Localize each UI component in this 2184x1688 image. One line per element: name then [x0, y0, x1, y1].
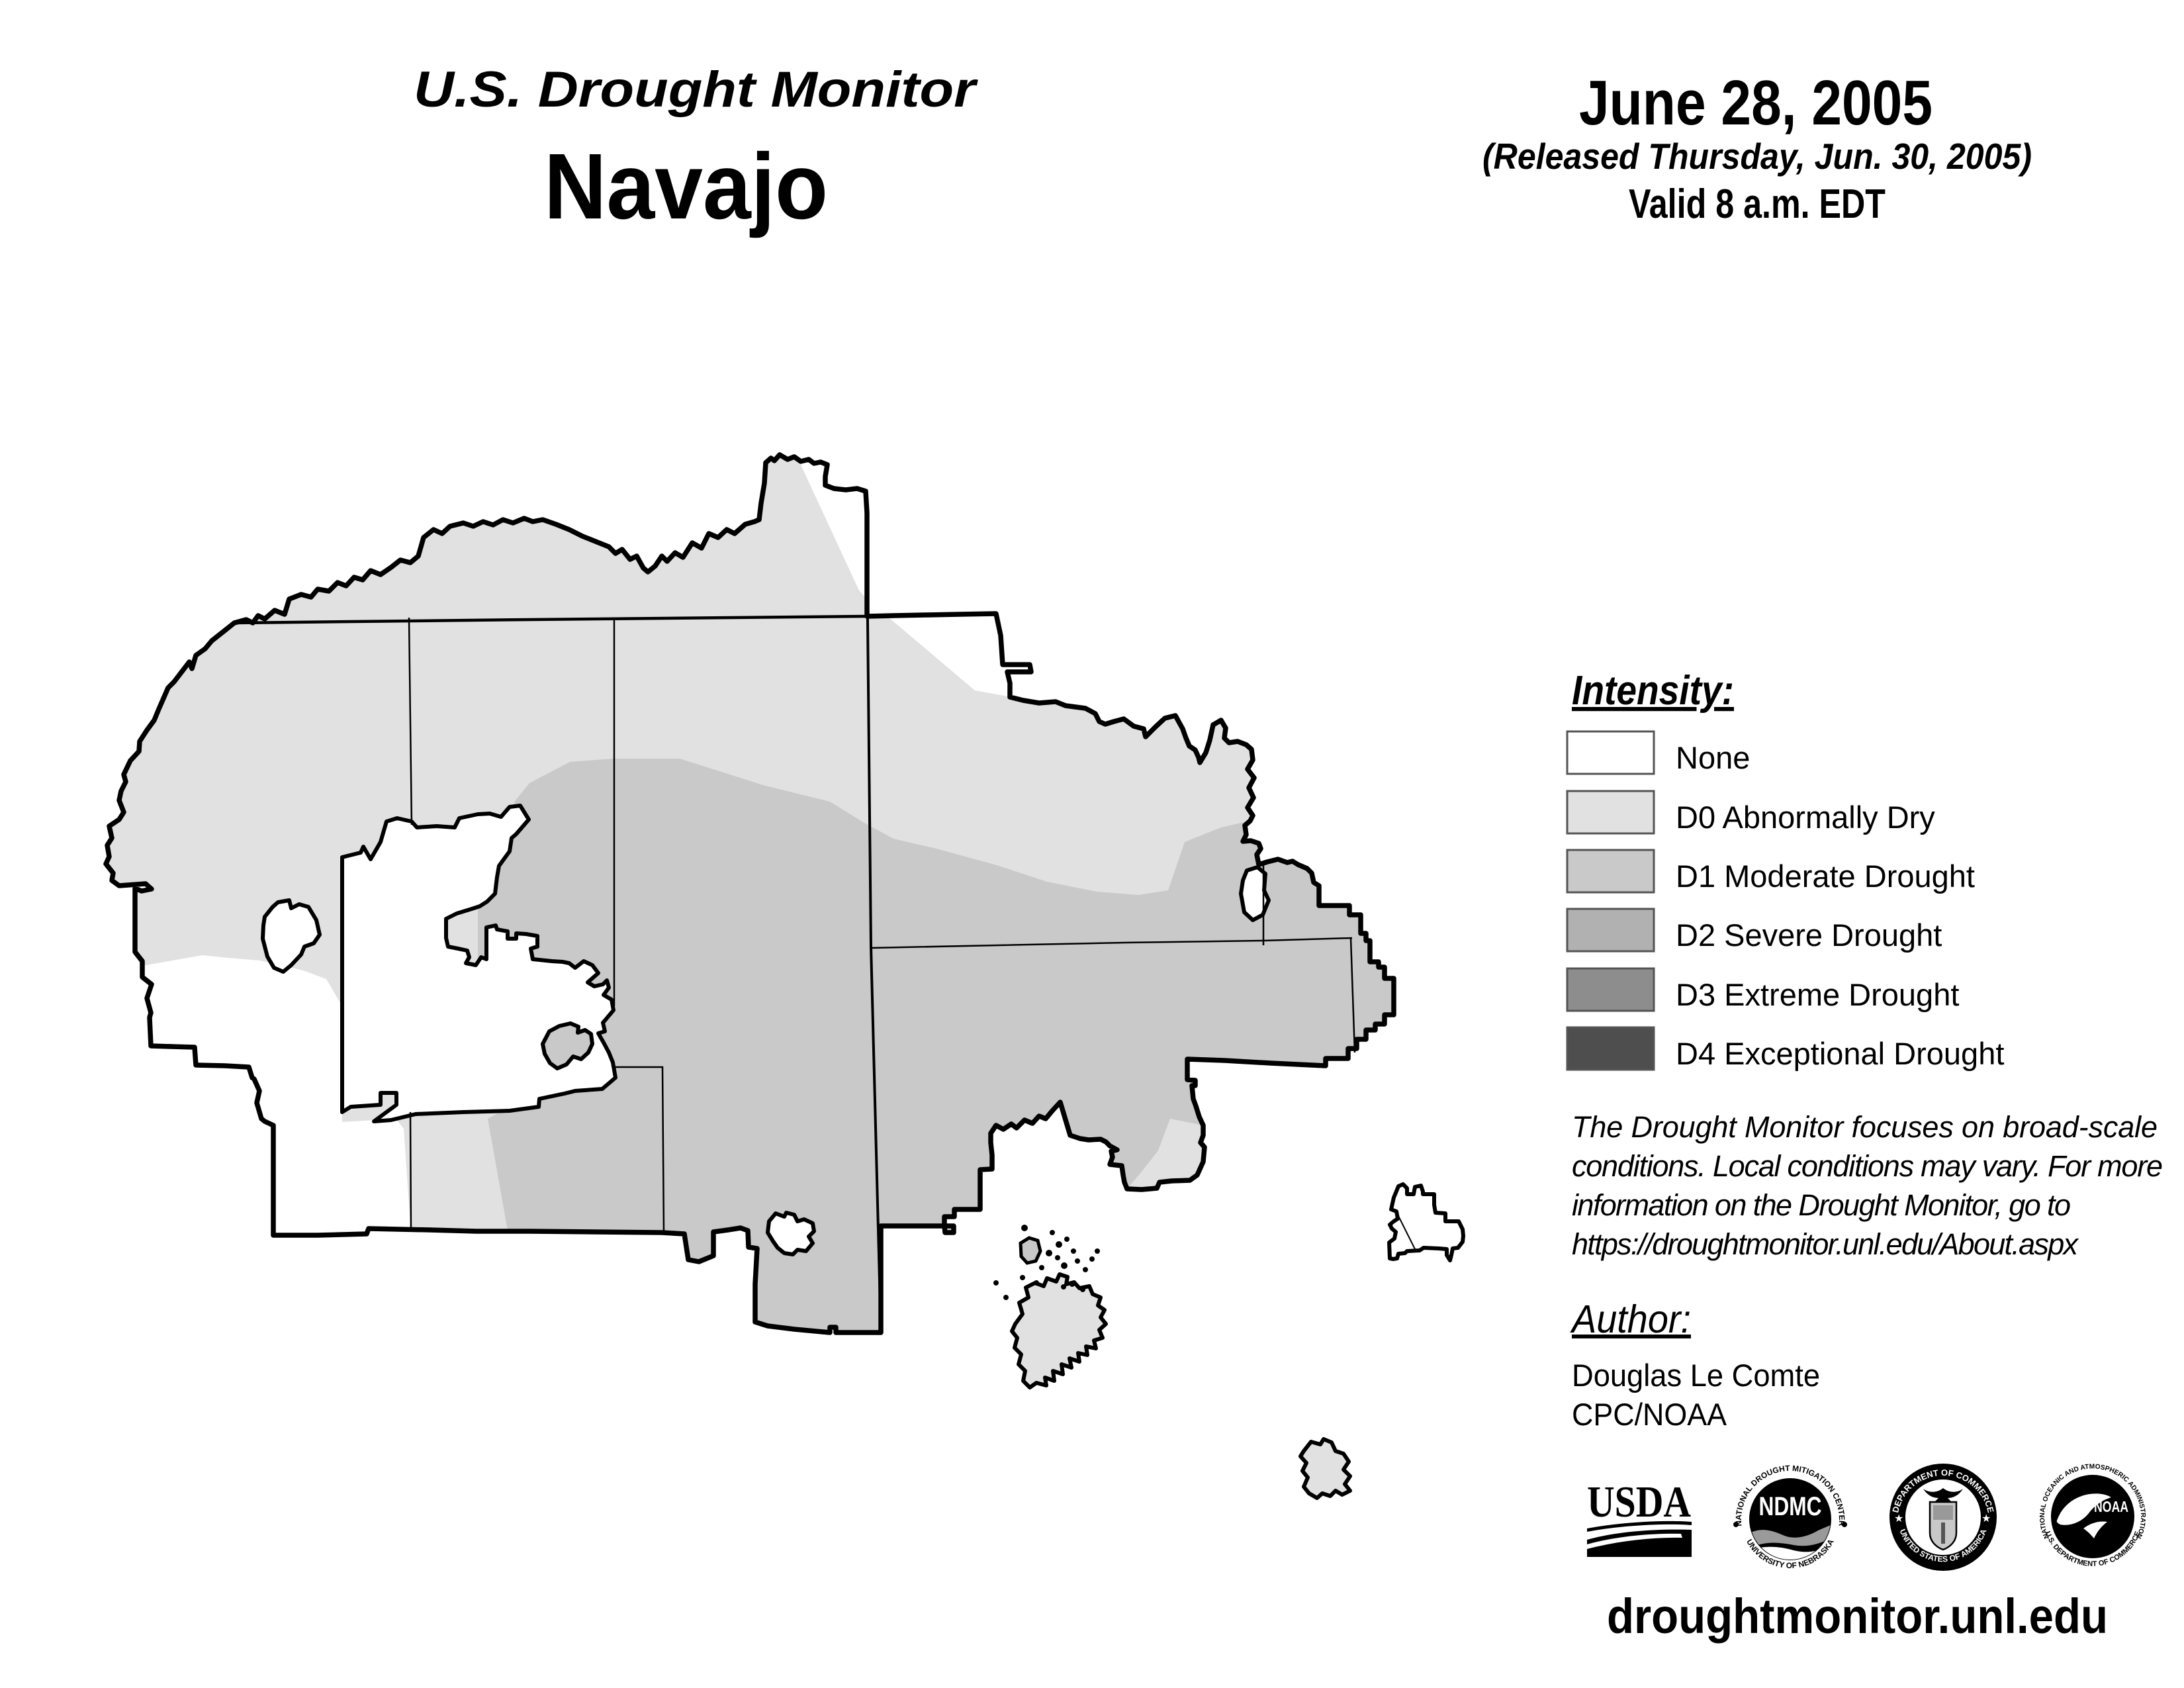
svg-text:D3 Extreme Drought: D3 Extreme Drought: [1676, 977, 1959, 1012]
svg-text:D4 Exceptional Drought: D4 Exceptional Drought: [1676, 1036, 2004, 1071]
svg-text:★: ★: [1894, 1513, 1903, 1524]
svg-text:CPC/NOAA: CPC/NOAA: [1572, 1397, 1727, 1432]
svg-text:information on the Drought Mon: information on the Drought Monitor, go t…: [1572, 1188, 2071, 1222]
svg-text:The Drought Monitor focuses on: The Drought Monitor focuses on broad-sca…: [1572, 1110, 2158, 1144]
svg-text:Intensity:: Intensity:: [1572, 668, 1734, 714]
svg-text:NOAA: NOAA: [2094, 1498, 2128, 1515]
svg-text:USDA: USDA: [1587, 1477, 1691, 1526]
svg-text:D1 Moderate Drought: D1 Moderate Drought: [1676, 859, 1975, 894]
svg-text:droughtmonitor.unl.edu: droughtmonitor.unl.edu: [1607, 1589, 2108, 1644]
svg-text:conditions. Local conditions m: conditions. Local conditions may vary. F…: [1572, 1149, 2163, 1183]
svg-text:★: ★: [1981, 1513, 1991, 1524]
svg-text:Valid 8 a.m. EDT: Valid 8 a.m. EDT: [1629, 181, 1886, 227]
svg-text:NDMC: NDMC: [1759, 1492, 1822, 1521]
svg-text:D0 Abnormally Dry: D0 Abnormally Dry: [1676, 800, 1935, 835]
svg-text:D2 Severe Drought: D2 Severe Drought: [1676, 917, 1942, 953]
svg-text:Author:: Author:: [1570, 1297, 1691, 1341]
svg-text:U.S. Drought Monitor: U.S. Drought Monitor: [414, 62, 979, 118]
svg-text:None: None: [1676, 740, 1750, 775]
svg-text:(Released Thursday, Jun. 30, 2: (Released Thursday, Jun. 30, 2005): [1482, 136, 2032, 177]
svg-text:June 28, 2005: June 28, 2005: [1579, 68, 1933, 138]
svg-text:Douglas Le Comte: Douglas Le Comte: [1572, 1358, 1820, 1393]
svg-text:https://droughtmonitor.unl.edu: https://droughtmonitor.unl.edu/About.asp…: [1572, 1227, 2079, 1261]
svg-text:Navajo: Navajo: [544, 134, 828, 238]
